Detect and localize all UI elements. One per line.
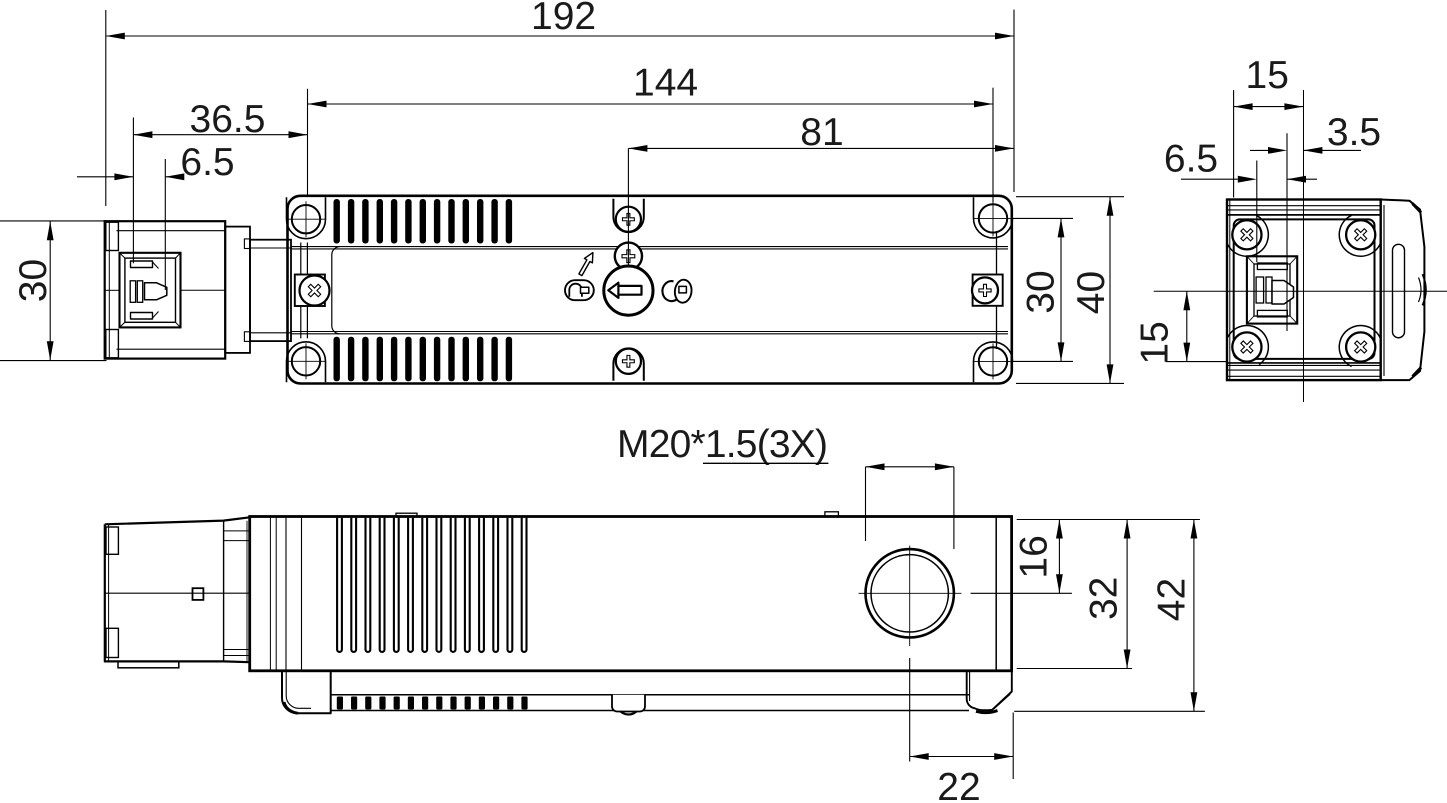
svg-text:144: 144 (633, 61, 698, 104)
svg-text:16: 16 (1013, 535, 1056, 578)
svg-text:15: 15 (1246, 54, 1289, 97)
svg-text:36.5: 36.5 (190, 98, 266, 141)
svg-text:81: 81 (800, 111, 843, 154)
svg-text:32: 32 (1083, 577, 1126, 620)
svg-text:15: 15 (1134, 321, 1177, 364)
svg-text:30: 30 (1020, 270, 1063, 313)
svg-text:M20*1.5(3X): M20*1.5(3X) (617, 423, 828, 466)
svg-text:192: 192 (531, 0, 596, 38)
svg-text:40: 40 (1070, 271, 1113, 314)
svg-text:22: 22 (937, 766, 980, 803)
svg-text:3.5: 3.5 (1327, 111, 1381, 154)
svg-text:42: 42 (1151, 578, 1194, 621)
svg-text:6.5: 6.5 (180, 141, 234, 184)
svg-text:30: 30 (12, 259, 55, 302)
svg-text:6.5: 6.5 (1164, 138, 1218, 181)
